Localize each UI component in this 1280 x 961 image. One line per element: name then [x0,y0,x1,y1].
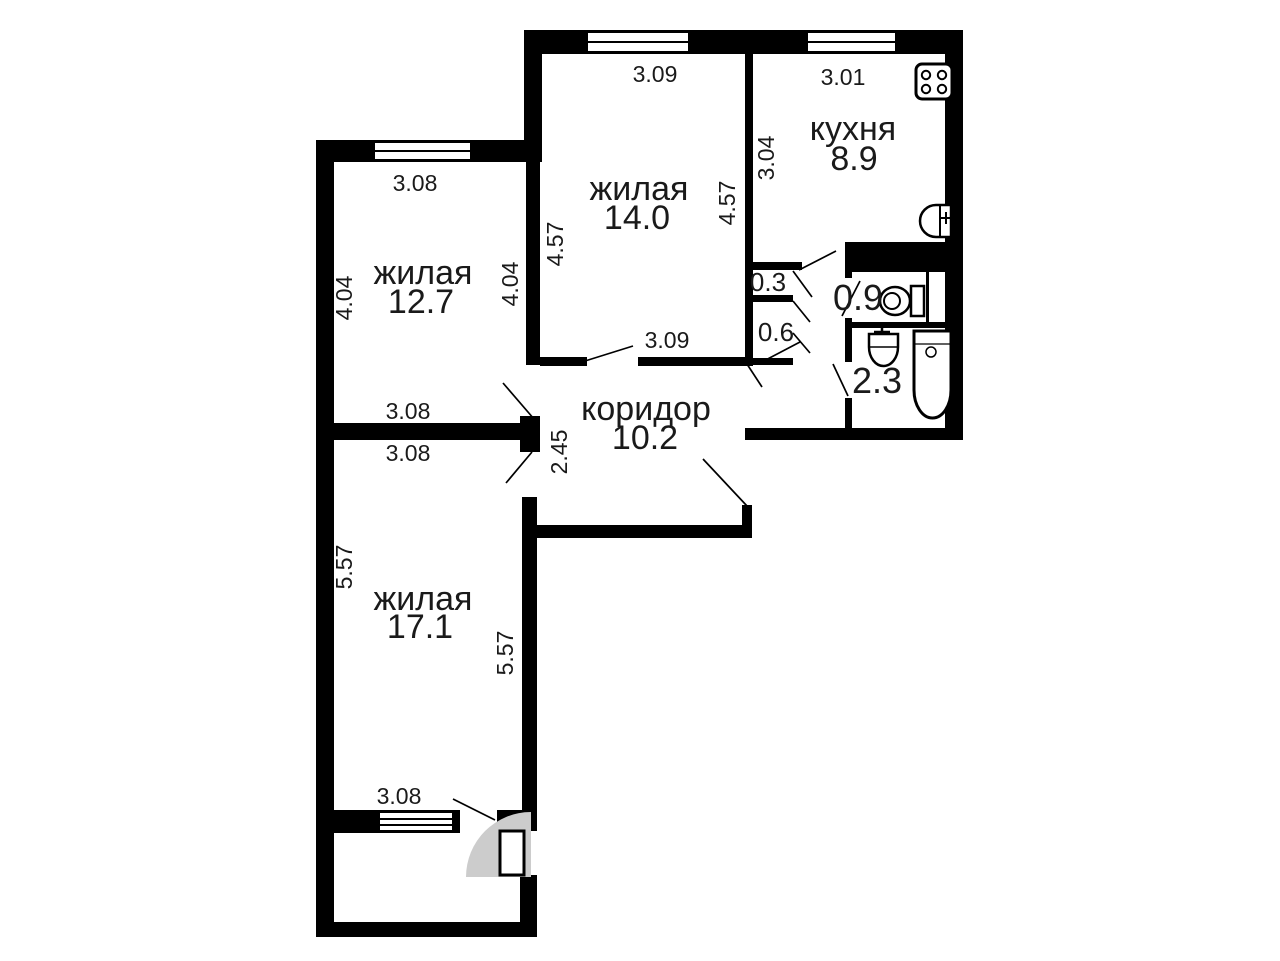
door-line-bathroom [833,364,848,396]
dim-room14-right: 4.57 [714,181,740,226]
dim-corridor-width: 2.45 [546,430,572,475]
wall-corridor-bottom [522,525,752,538]
kitchen-sink-icon [920,205,951,237]
room17-area: 17.1 [387,608,453,646]
dim-room12-left: 4.04 [331,275,357,320]
dim-room12-top: 3.08 [393,170,438,196]
wc-area: 0.9 [833,277,883,318]
wall-bath-west-lower [845,398,852,428]
wall-balcony-right [520,875,537,922]
window-room12-icon [375,143,470,159]
window-room14-icon [588,33,688,51]
wall-bath-bottom [745,428,963,440]
wall-shaft-partition [926,272,929,322]
dim-room14-top: 3.09 [633,61,678,87]
bathtub-icon [914,331,951,418]
closet-small-area: 0.3 [750,267,786,297]
dim-room17-window: 3.08 [377,783,422,809]
wall-corridor-stub-right [742,505,752,538]
balcony-door-leaf [500,831,524,875]
corridor-area: 10.2 [612,419,678,457]
door-line-entrance [703,459,747,506]
wall-room14-bottom-left [540,357,587,366]
stove-icon [916,64,952,99]
door-line-kitchen [799,251,836,270]
dim-room12-bottom: 3.08 [386,398,431,424]
door-line-room14 [585,346,633,361]
wall-wc-bottom [845,322,963,328]
toilet-icon [880,286,924,316]
window-kitchen-icon [808,33,895,51]
door-line-closet-small [793,271,812,297]
wall-room14-bottom-right [638,357,753,366]
bathroom-area: 2.3 [852,360,902,401]
room-labels: жилая 12.7 жилая 14.0 кухня 8.9 коридор … [374,110,902,646]
wall-corridor-stub-left [522,497,535,557]
door-line-room12 [503,383,534,419]
dim-room17-left: 5.57 [331,545,357,590]
closet-large-area: 0.6 [758,317,794,347]
room12-area: 12.7 [388,283,454,321]
floor-plan-canvas: жилая 12.7 жилая 14.0 кухня 8.9 коридор … [0,0,1280,961]
kitchen-area: 8.9 [830,140,877,178]
room14-area: 14.0 [604,199,670,237]
dim-room17-top: 3.08 [386,440,431,466]
wall-kitchen-bottom-block [845,242,963,272]
dim-kitchen-top: 3.01 [821,64,866,90]
wall-room12-room17-divider [316,423,540,440]
balcony-door [466,812,531,877]
dim-room12-right: 4.04 [497,261,523,306]
wall-divider-room12-room14 [526,54,540,365]
floor-plan-page: жилая 12.7 жилая 14.0 кухня 8.9 коридор … [0,0,1280,961]
dim-room17-right: 5.57 [492,631,518,676]
dim-kitchen-side: 3.04 [753,135,779,180]
dim-room14-left: 4.57 [542,222,568,267]
wall-room14-east [745,54,753,365]
door-line-room17 [506,452,532,483]
door-line-closet-large-a [793,301,810,322]
window-room17-icon [380,813,452,830]
door-line-closet-large-b [793,333,810,353]
wall-balcony-bottom [316,922,537,937]
dim-room14-door: 3.09 [645,327,690,353]
